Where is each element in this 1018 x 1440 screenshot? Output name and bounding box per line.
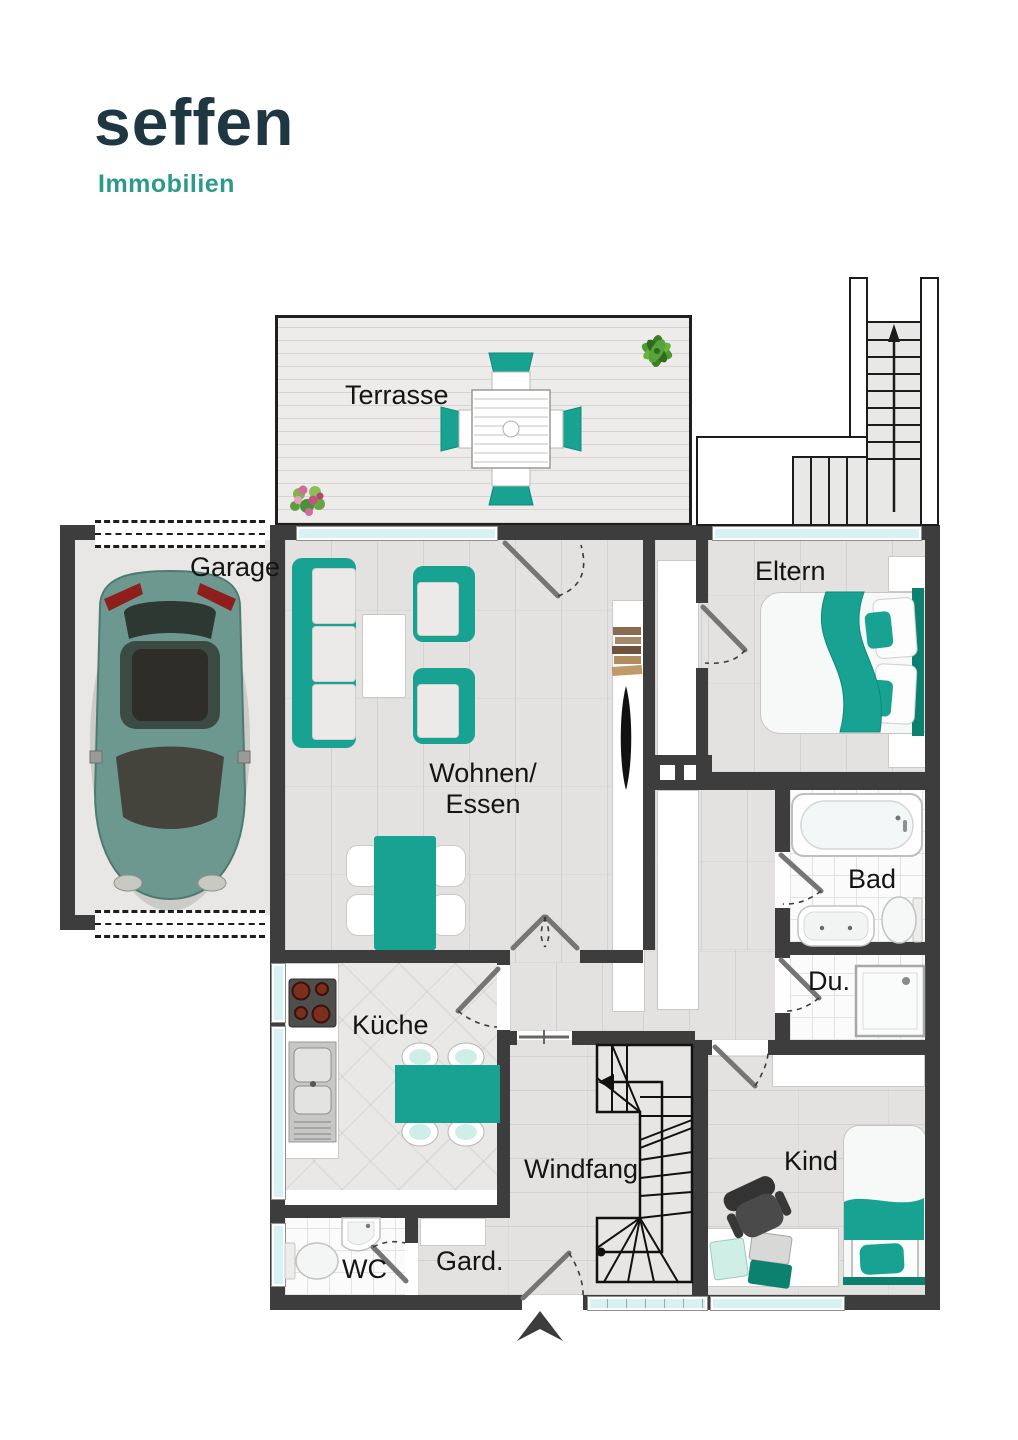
window-entry-sidelight — [587, 1296, 708, 1311]
chimney-flue — [660, 765, 675, 780]
wall — [775, 790, 790, 852]
room-label-wohnen-line1: Wohnen/ — [429, 758, 537, 788]
room-label-kueche: Küche — [352, 1010, 429, 1041]
window — [712, 526, 922, 541]
window — [296, 526, 498, 541]
room-label-wc: WC — [342, 1254, 387, 1285]
armchair-cushion — [417, 684, 459, 738]
window — [710, 1296, 845, 1311]
entrance-arrow — [517, 1311, 563, 1341]
wall — [643, 540, 655, 950]
window — [271, 1223, 286, 1287]
wall — [775, 908, 790, 958]
kitchen-counter — [285, 963, 339, 1159]
room-label-dusche: Du. — [808, 966, 850, 997]
floorplan-page: Terrasse Garage Wohnen/ Essen Eltern Bad… — [0, 0, 1018, 1440]
sofa-cushion — [312, 684, 356, 740]
armchair — [413, 668, 475, 744]
garage-door — [95, 520, 265, 548]
room-garage-floor — [75, 540, 270, 915]
wall — [60, 915, 97, 930]
room-terrasse — [275, 315, 692, 526]
room-label-wohnen: Wohnen/ Essen — [398, 758, 568, 820]
garderobe-cabinet — [420, 1218, 486, 1246]
accent-pillow — [859, 1243, 905, 1275]
nightstand — [888, 732, 926, 768]
wall — [497, 1030, 510, 1210]
wall — [60, 525, 75, 930]
window — [271, 963, 286, 1023]
wall — [696, 772, 925, 790]
wall — [696, 668, 708, 772]
room-label-garage: Garage — [190, 552, 280, 583]
brand-logo: seffen — [94, 84, 294, 160]
sofa — [292, 558, 356, 748]
hall-cabinet — [657, 790, 699, 1010]
garage-door — [95, 910, 265, 938]
external-stairs — [697, 278, 938, 525]
wall — [692, 1040, 708, 1295]
room-label-windfang: Windfang — [524, 1154, 638, 1185]
sofa-cushion — [312, 626, 356, 682]
nightstand — [888, 556, 926, 592]
window — [271, 1026, 286, 1200]
bed-headboard — [843, 1277, 925, 1285]
room-label-kind: Kind — [784, 1146, 838, 1177]
room-label-bad: Bad — [848, 864, 896, 895]
wall — [790, 942, 925, 955]
wall — [497, 950, 510, 965]
wall — [270, 1205, 510, 1218]
armchair — [413, 566, 475, 642]
desk — [705, 1228, 839, 1287]
room-label-eltern: Eltern — [755, 556, 826, 587]
wall — [60, 525, 97, 540]
accent-pillow — [864, 679, 893, 717]
wall — [696, 540, 708, 603]
armchair-cushion — [417, 582, 459, 636]
room-label-garderobe: Gard. — [436, 1246, 504, 1277]
wall — [270, 1295, 522, 1310]
wall — [270, 950, 510, 963]
wall — [580, 950, 643, 963]
room-label-terrasse: Terrasse — [345, 380, 449, 411]
coffee-table — [362, 614, 406, 698]
wall — [775, 1013, 790, 1040]
brand-tagline: Immobilien — [98, 170, 235, 199]
wall — [572, 1031, 695, 1045]
wall — [768, 1040, 925, 1055]
accent-pillow — [864, 611, 894, 650]
wall — [925, 525, 940, 1310]
room-label-wohnen-line2: Essen — [445, 789, 520, 819]
sofa-cushion — [312, 568, 356, 624]
wall — [510, 1031, 517, 1045]
hall-cabinet — [657, 560, 699, 758]
wall — [405, 1218, 418, 1243]
dining-table — [374, 836, 436, 950]
